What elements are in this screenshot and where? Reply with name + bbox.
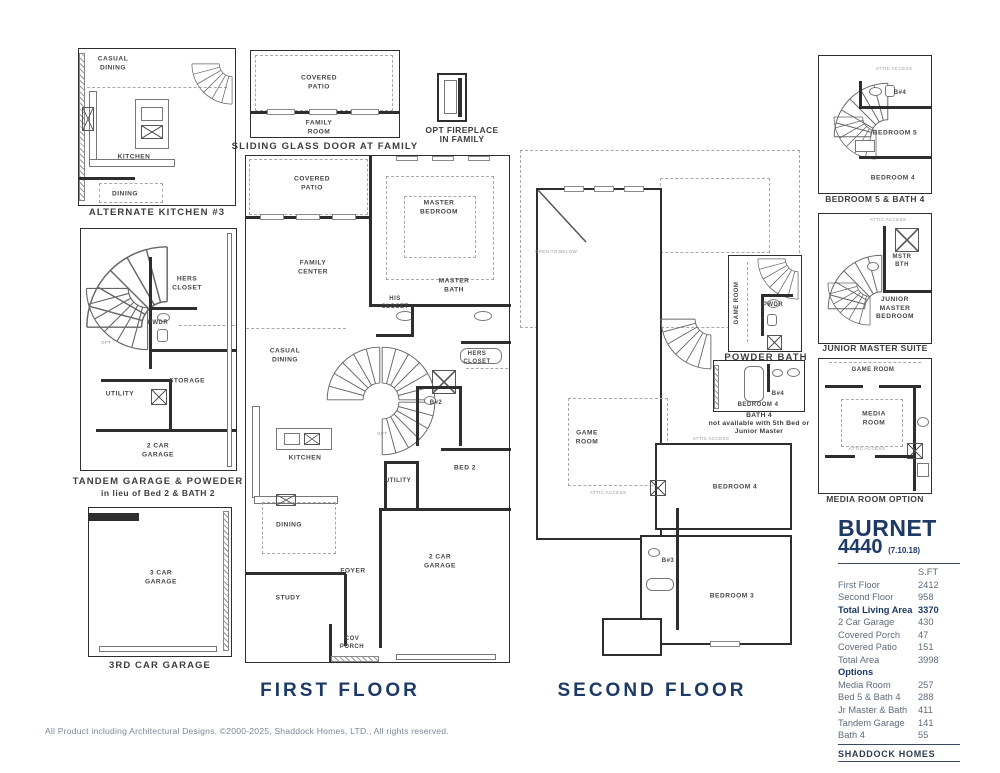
- window: [396, 156, 418, 161]
- panel-media-room: GAME ROOM MEDIA ROOM ATTIC ACCESS: [818, 358, 932, 494]
- wall: [416, 386, 419, 446]
- caption-tandem-1: TANDEM GARAGE & POWEDER: [73, 476, 244, 487]
- caption-bath4-3: Junior Master: [735, 428, 783, 435]
- wall: [376, 334, 414, 337]
- caption-bath4-2: not available with 5th Bed or: [709, 420, 810, 427]
- panel-junior-master: ATTIC ACCESS MSTR BTH JUNIOR MASTER BEDR…: [818, 213, 932, 344]
- fireplace-box: [444, 80, 457, 114]
- room-label-bed-2: BED 2: [454, 465, 476, 474]
- row-label: Bed 5 & Bath 4: [838, 691, 918, 704]
- room-label-media-room: MEDIA ROOM: [854, 410, 894, 427]
- caption-tandem-2: in lieu of Bed 2 & BATH 2: [101, 488, 215, 498]
- window: [624, 186, 644, 192]
- wall: [149, 257, 152, 369]
- room-label-3-car-garage: 3 CAR GARAGE: [139, 569, 183, 586]
- wall: [344, 574, 347, 646]
- room-label-storage: STORAGE: [169, 378, 205, 387]
- wall: [825, 455, 855, 458]
- window: [468, 156, 490, 161]
- wall: [149, 307, 197, 310]
- cabinet: [917, 463, 929, 477]
- window: [594, 186, 614, 192]
- wall: [767, 364, 770, 392]
- appliance: [141, 107, 163, 121]
- wall: [441, 448, 511, 451]
- room-label-kitchen: KITCHEN: [118, 154, 151, 163]
- sink: [648, 548, 660, 557]
- table-row: 2 Car Garage430: [838, 616, 960, 629]
- divider: [838, 744, 960, 745]
- sliding-door-pane: [351, 109, 379, 115]
- room-label-2-car-garage: 2 CAR GARAGE: [417, 553, 463, 570]
- row-value: 47: [918, 629, 960, 642]
- row-value: 151: [918, 641, 960, 654]
- room-label-pwdr: PWDR: [763, 302, 783, 310]
- porch-edge: [331, 656, 379, 662]
- room-label-casual-dining: CASUAL DINING: [93, 55, 133, 72]
- sink: [869, 87, 882, 96]
- appliance: [284, 433, 300, 445]
- sink: [787, 368, 800, 377]
- stair-fan: [827, 282, 871, 326]
- wall: [416, 461, 419, 509]
- panel-alternate-kitchen: CASUAL DINING KITCHEN DINING: [78, 48, 236, 206]
- cabinet: [855, 140, 875, 152]
- row-value: 958: [918, 591, 960, 604]
- bathtub: [646, 578, 674, 591]
- room-label-dining: DINING: [276, 522, 302, 531]
- caption-sliding-glass-door: SLIDING GLASS DOOR AT FAMILY: [232, 141, 419, 152]
- room-label-bedroom-4: BEDROOM 4: [868, 175, 918, 184]
- utility-box: [151, 389, 167, 405]
- options-header-row: Options: [838, 666, 960, 679]
- caption-media-room: MEDIA ROOM OPTION: [826, 494, 924, 504]
- row-value: 141: [918, 717, 960, 730]
- room-label-foyer: FOYER: [340, 568, 365, 577]
- room-label-family-center: FAMILY CENTER: [288, 259, 338, 276]
- caption-junior-master: JUNIOR MASTER SUITE: [822, 343, 927, 353]
- wall: [227, 233, 232, 467]
- room-label-open-to-below: OPEN TO BELOW: [535, 249, 577, 255]
- room-label-bath4: B#4: [894, 90, 907, 98]
- room-label-bath4: B#4: [772, 391, 785, 399]
- stair-fan: [660, 318, 712, 370]
- table-row-total-living: Total Living Area3370: [838, 604, 960, 617]
- column-header-sqft: S.FT: [918, 566, 960, 579]
- first-floor-plan: COVERED PATIO MASTER BEDROOM FAMILY CENT…: [245, 155, 510, 663]
- panel-third-garage: 3 CAR GARAGE: [88, 507, 232, 657]
- row-label: Jr Master & Bath: [838, 704, 918, 717]
- row-label: Bath 4: [838, 729, 918, 742]
- caption-alternate-kitchen: ALTERNATE KITCHEN #3: [89, 207, 225, 218]
- room-label-2-car-garage: 2 CAR GARAGE: [135, 442, 181, 459]
- panel-bath4: B#4 BEDROOM 4: [713, 360, 805, 412]
- room-label-opt: OPT: [377, 431, 387, 437]
- room-label-bedroom-4: BEDROOM 4: [738, 402, 779, 410]
- room-label-cov-porch: COV PORCH: [334, 636, 370, 652]
- row-label: First Floor: [838, 579, 918, 592]
- wall: [246, 572, 346, 575]
- plan-revision: (7.10.18): [888, 546, 920, 555]
- stair-fan: [191, 63, 233, 105]
- room-label-game-room: GAME ROOM: [734, 282, 742, 325]
- wall: [859, 156, 931, 159]
- wall: [79, 177, 135, 180]
- table-row: Tandem Garage141: [838, 717, 960, 730]
- stair-fan: [85, 287, 149, 351]
- sink: [867, 262, 879, 271]
- toilet: [157, 329, 168, 342]
- row-value: 257: [918, 679, 960, 692]
- row-label: Total Living Area: [838, 604, 918, 617]
- room-label-covered-patio: COVERED PATIO: [294, 74, 344, 91]
- wall: [859, 81, 862, 109]
- plan-number: 4440: [838, 536, 883, 558]
- wall: [461, 341, 511, 344]
- table-row: Bed 5 & Bath 4288: [838, 691, 960, 704]
- wall: [883, 290, 931, 293]
- sink: [474, 311, 492, 321]
- row-value: 288: [918, 691, 960, 704]
- room-label-master-bedroom: MASTER BEDROOM: [409, 199, 469, 216]
- panel-sliding-glass-door: COVERED PATIO FAMILY ROOM: [250, 50, 400, 138]
- wall: [459, 386, 462, 446]
- wall: [101, 379, 171, 382]
- table-row: Total Area3998: [838, 654, 960, 667]
- room-label-opt: OPT: [101, 340, 111, 346]
- room-label-pwdr: PWDR: [148, 320, 168, 328]
- wall: [676, 508, 679, 630]
- table-row: Media Room257: [838, 679, 960, 692]
- wall: [384, 461, 419, 464]
- caption-bed5-bath4: BEDROOM 5 & BATH 4: [825, 194, 925, 204]
- wall: [223, 511, 229, 651]
- room-label-study: STUDY: [276, 595, 301, 604]
- sink: [304, 433, 320, 445]
- wall: [416, 386, 461, 389]
- copyright-text: All Product including Architectural Desi…: [45, 726, 449, 736]
- window: [432, 156, 454, 161]
- sliding-door-pane: [309, 109, 337, 115]
- toilet: [767, 314, 777, 326]
- room-label-game-room: GAME ROOM: [569, 429, 605, 446]
- room-label-bedroom-4: BEDROOM 4: [711, 484, 759, 493]
- table-row: Bath 455: [838, 729, 960, 742]
- room-label-covered-patio: COVERED PATIO: [287, 175, 337, 192]
- wall: [458, 78, 462, 117]
- dashed-line: [246, 328, 346, 329]
- row-value: 2412: [918, 579, 960, 592]
- row-label: Second Floor: [838, 591, 918, 604]
- utility-box: [650, 480, 666, 496]
- roof-line: [538, 190, 586, 242]
- room-label-mstr-bth: MSTR BTH: [888, 254, 916, 270]
- table-row: First Floor2412: [838, 579, 960, 592]
- panel-tandem-garage: HERS CLOSET PWDR OPT STORAGE UTILITY 2 C…: [80, 228, 237, 471]
- wall: [369, 156, 372, 306]
- wall: [714, 365, 719, 409]
- plan-number-line: 4440 (7.10.18): [838, 539, 960, 559]
- sink: [917, 417, 929, 427]
- bathtub: [744, 366, 764, 402]
- window: [296, 214, 320, 220]
- divider: [838, 563, 960, 564]
- row-label: Total Area: [838, 654, 918, 667]
- room-label-bedroom-3: BEDROOM 3: [708, 593, 756, 602]
- panel-bed5-bath4: ATTIC ACCESS B#4 BEDROOM 5 BEDROOM 4: [818, 55, 932, 194]
- caption-opt-fireplace-2: IN FAMILY: [440, 134, 485, 144]
- room-label-hers-closet: HERS CLOSET: [164, 275, 210, 292]
- row-label: Media Room: [838, 679, 918, 692]
- brand-name: SHADDOCK HOMES: [838, 747, 960, 760]
- room-label-attic-access: ATTIC ACCESS: [590, 490, 626, 496]
- wall: [883, 226, 886, 292]
- room-label-utility: UTILITY: [106, 391, 134, 400]
- panel-opt-fireplace: [437, 73, 467, 122]
- caption-bath4-1: BATH 4: [746, 412, 772, 419]
- row-label: Covered Porch: [838, 629, 918, 642]
- caption-second-floor: SECOND FLOOR: [557, 680, 746, 702]
- row-value: 55: [918, 729, 960, 742]
- wall: [761, 294, 764, 336]
- room-label-dining: DINING: [112, 191, 138, 200]
- dashed-line: [747, 262, 748, 342]
- window: [710, 641, 740, 647]
- table-row: Covered Patio151: [838, 641, 960, 654]
- caption-first-floor: FIRST FLOOR: [260, 680, 420, 702]
- wall: [379, 508, 511, 511]
- roof-outline: [660, 178, 770, 253]
- row-value: 3370: [918, 604, 960, 617]
- wall: [761, 294, 793, 297]
- room-label-hers-closet: HERS CLOSET: [456, 351, 498, 367]
- wall: [169, 379, 172, 429]
- lower-roof-block: [602, 618, 662, 656]
- room-label-kitchen: KITCHEN: [289, 455, 322, 464]
- garage-door: [396, 654, 496, 660]
- room-label-family-room: FAMILY ROOM: [297, 119, 341, 136]
- counter: [252, 406, 260, 498]
- range: [82, 107, 94, 131]
- wall: [875, 455, 913, 458]
- room-label-utility: UTILITY: [385, 478, 411, 486]
- room-label-casual-dining: CASUAL DINING: [263, 347, 307, 364]
- row-label: 2 Car Garage: [838, 616, 918, 629]
- room-label-attic-access: ATTIC ACCESS: [870, 217, 906, 223]
- wall: [149, 349, 237, 352]
- row-value: 430: [918, 616, 960, 629]
- wall: [913, 385, 916, 491]
- floorplan-sheet: CASUAL DINING KITCHEN DINING ALTERNATE K…: [0, 0, 1000, 773]
- row-value: 3998: [918, 654, 960, 667]
- caption-third-garage: 3RD CAR GARAGE: [109, 660, 211, 671]
- wall: [96, 429, 236, 432]
- shower: [895, 228, 919, 252]
- dashed-line: [829, 362, 921, 363]
- toilet: [772, 369, 783, 377]
- table-header-row: S.FT: [838, 566, 960, 579]
- room-label-junior-master-bedroom: JUNIOR MASTER BEDROOM: [868, 296, 922, 322]
- stair-fan: [381, 346, 436, 401]
- room-label-bath2: B#2: [430, 400, 443, 408]
- wall: [859, 106, 931, 109]
- room-label-attic-access: ATTIC ACCESS: [849, 446, 885, 452]
- garage-door: [99, 646, 217, 652]
- panel-powder-bath: GAME ROOM PWDR: [728, 255, 802, 352]
- row-label: Covered Patio: [838, 641, 918, 654]
- options-header: Options: [838, 666, 960, 679]
- row-value: 411: [918, 704, 960, 717]
- wall: [89, 513, 139, 521]
- room-label-bath3: B#3: [662, 558, 675, 566]
- table-row: Jr Master & Bath411: [838, 704, 960, 717]
- wall: [379, 508, 382, 648]
- room-label-bedroom-5: BEDROOM 5: [870, 130, 920, 139]
- sliding-door-pane: [267, 109, 295, 115]
- room-label-his-closet: HIS CLOSET: [375, 296, 415, 312]
- dashed-line: [466, 368, 508, 369]
- row-label: Tandem Garage: [838, 717, 918, 730]
- room-label-attic-access: ATTIC ACCESS: [876, 66, 912, 72]
- table-row: Covered Porch47: [838, 629, 960, 642]
- utility-box: [767, 335, 782, 350]
- window: [260, 214, 284, 220]
- room-label-game-room: GAME ROOM: [852, 367, 895, 375]
- wall: [825, 385, 863, 388]
- room-label-master-bath: MASTER BATH: [431, 277, 477, 294]
- window: [332, 214, 356, 220]
- stair-fan: [381, 401, 436, 456]
- table-row: Second Floor958: [838, 591, 960, 604]
- sink: [141, 125, 163, 139]
- plan-info-panel: BURNET 4440 (7.10.18) S.FT First Floor24…: [838, 518, 960, 764]
- divider: [838, 761, 960, 762]
- room-label-attic-access: ATTIC ACCESS: [693, 436, 729, 442]
- stair-fan: [326, 346, 381, 401]
